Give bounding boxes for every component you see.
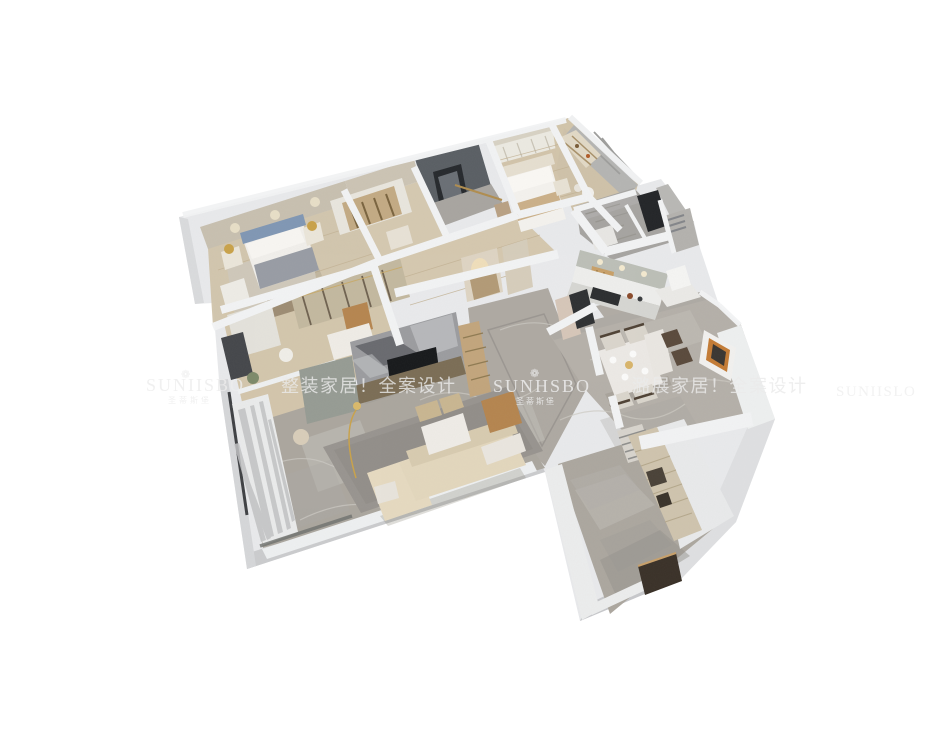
svg-text:潞展家居！全案设计: 潞展家居！全案设计 bbox=[632, 376, 808, 396]
svg-text:SUNHSBO: SUNHSBO bbox=[493, 376, 591, 396]
svg-text:圣蒂斯堡: 圣蒂斯堡 bbox=[516, 396, 556, 406]
svg-text:整装家居！全案设计: 整装家居！全案设计 bbox=[281, 376, 457, 396]
svg-text:❁: ❁ bbox=[181, 369, 190, 381]
svg-text:❁: ❁ bbox=[530, 368, 539, 380]
svg-text:SUNIISLO: SUNIISLO bbox=[836, 384, 916, 400]
svg-text:SUNIISBO: SUNIISBO bbox=[146, 375, 245, 395]
svg-text:圣蒂斯堡: 圣蒂斯堡 bbox=[168, 395, 212, 405]
